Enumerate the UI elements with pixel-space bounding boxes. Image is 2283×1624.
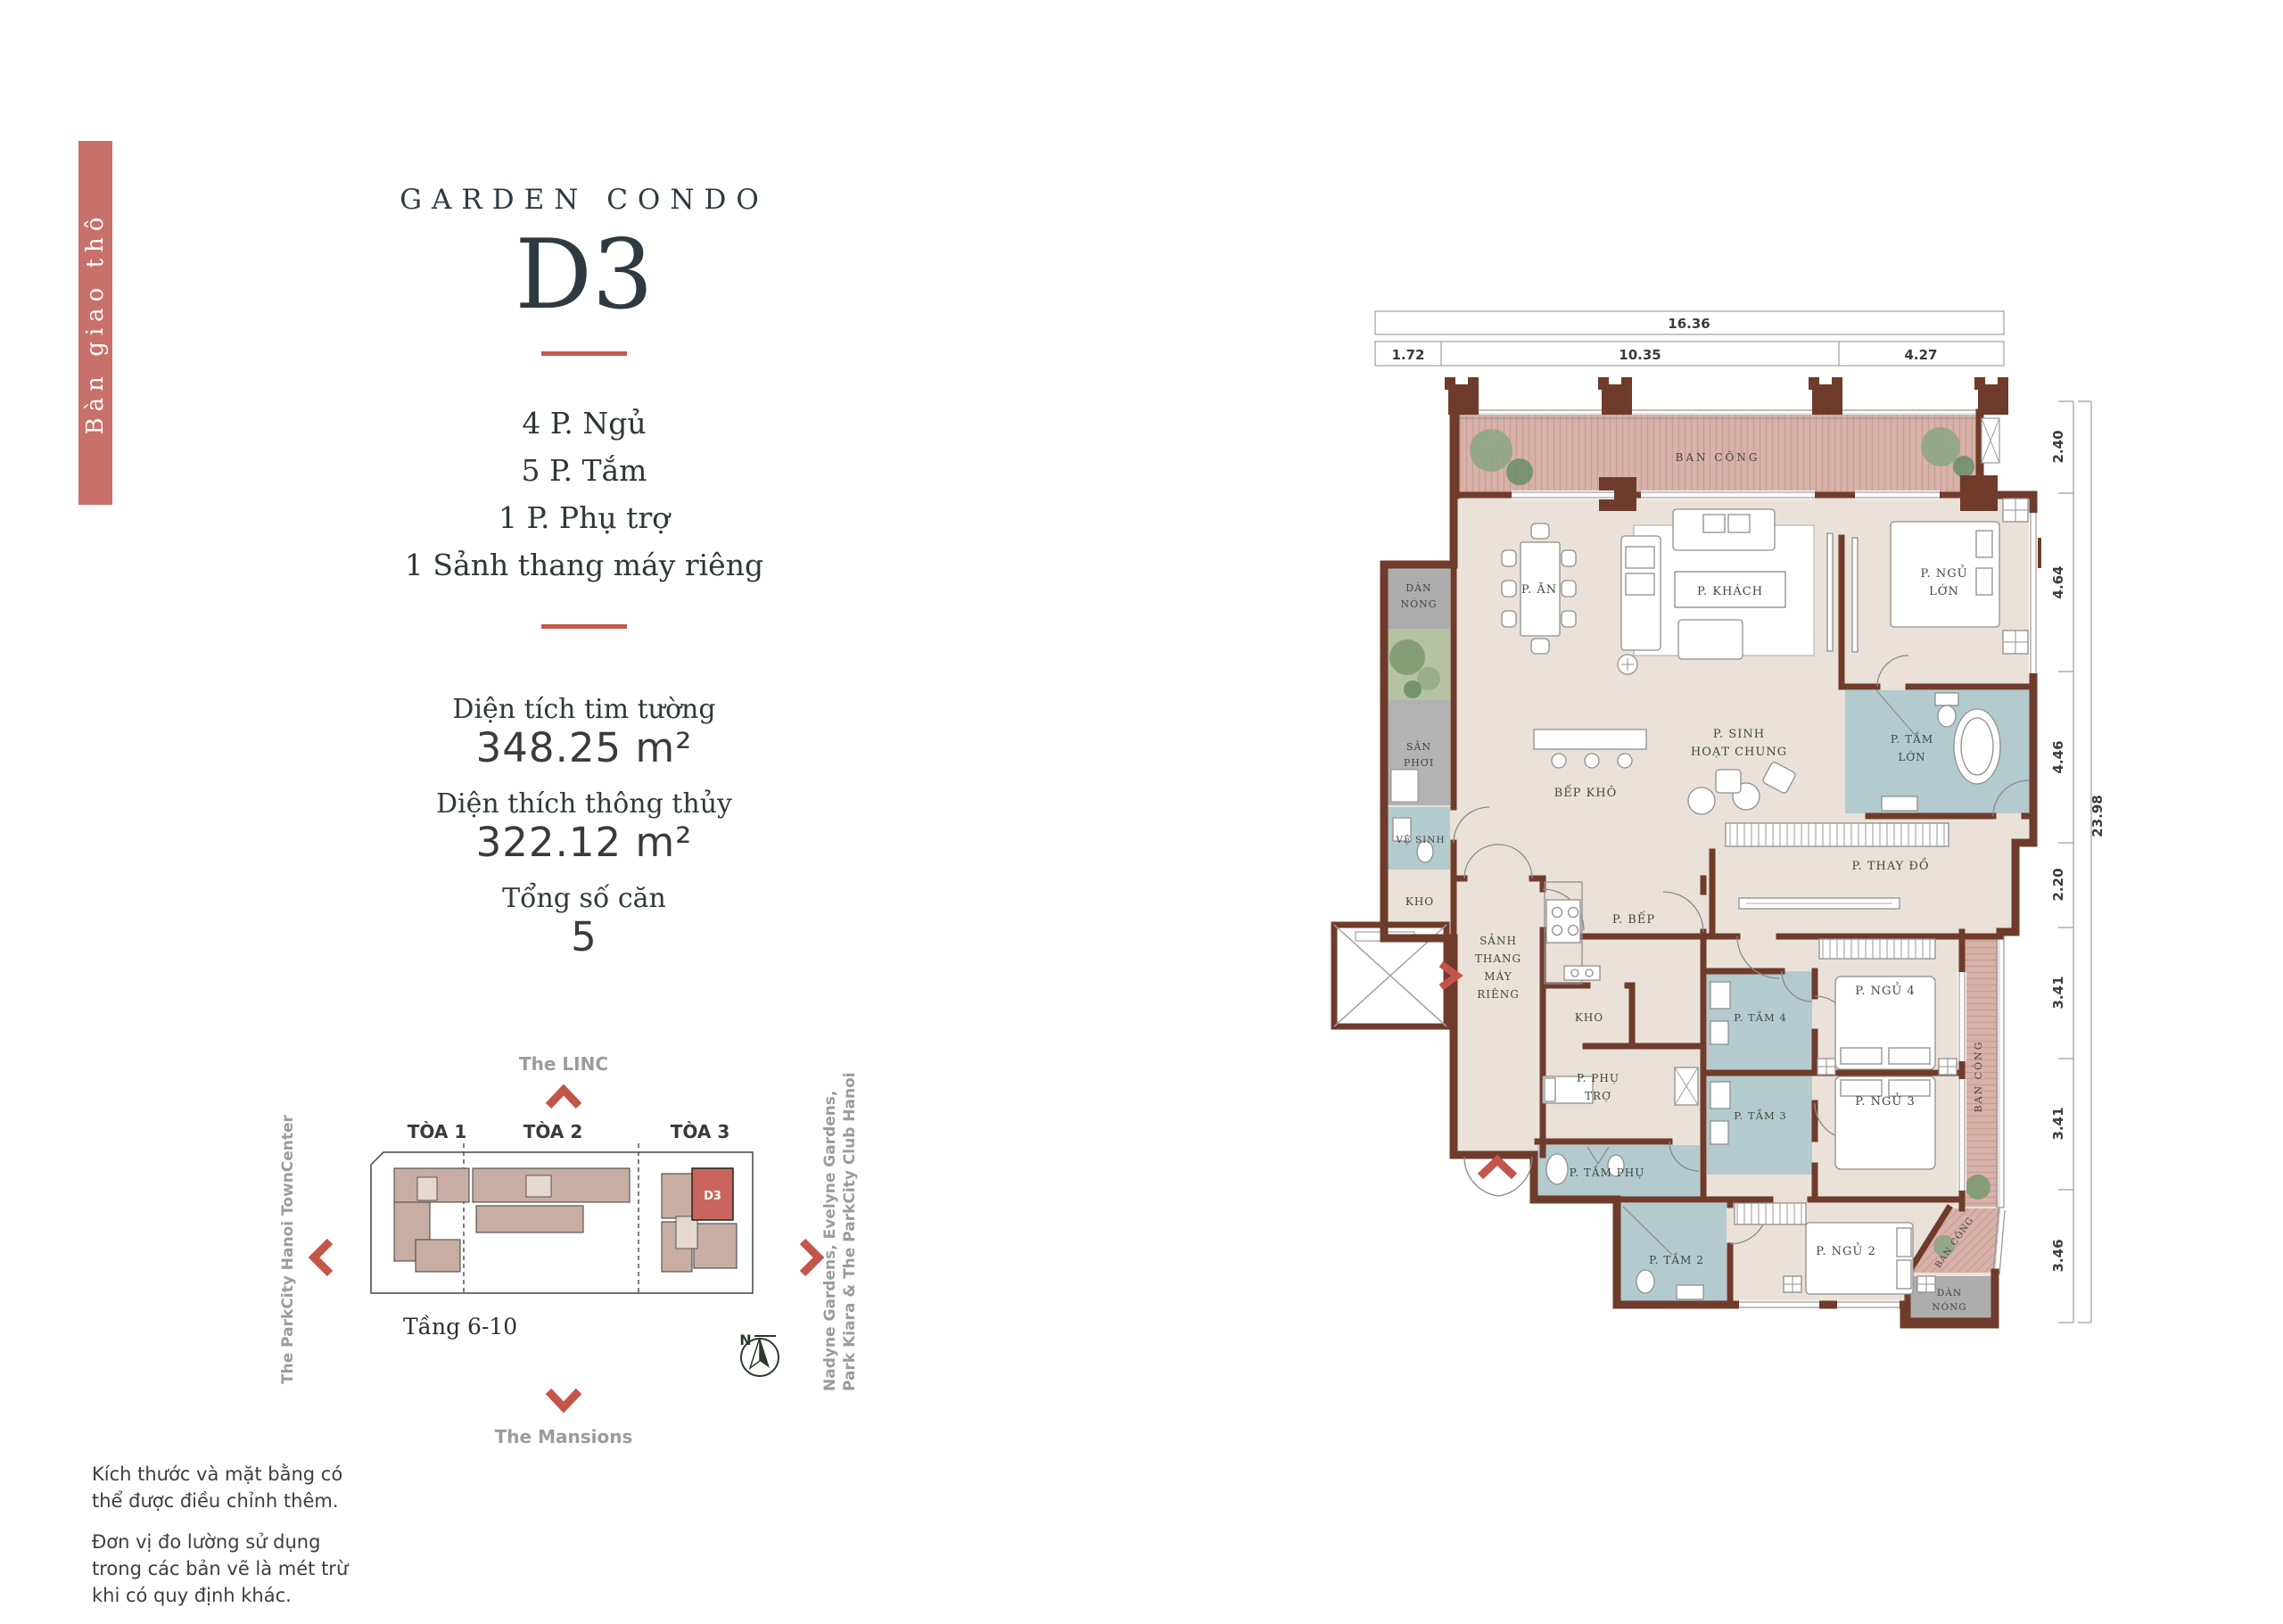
map-south-label: The Mansions	[495, 1426, 633, 1447]
label-lift-lobby-1: SẢNH	[1479, 932, 1517, 947]
dim-right-5: 3.41	[2050, 976, 2066, 1009]
dim-top-3: 4.27	[1904, 347, 1937, 363]
dim-right-1: 2.40	[2050, 430, 2066, 463]
tower-3-label: TÒA 3	[671, 1121, 729, 1142]
handover-tag-bar: Bàn giao thô	[78, 141, 112, 505]
label-master-bath-2: LỚN	[1898, 749, 1925, 763]
floor-plan: BAN CÔNG P. ĂN P. KHÁCH P. NGỦ LỚN DÀN N…	[1320, 308, 2105, 1356]
dim-right-6: 3.41	[2050, 1107, 2066, 1140]
label-dressing: P. THAY ĐỒ	[1851, 857, 1929, 873]
floors-label: Tầng 6-10	[403, 1314, 517, 1340]
label-master-bath-1: P. TẮM	[1891, 730, 1933, 746]
gross-area-value: 348.25 m²	[334, 726, 834, 771]
dim-right-7: 3.46	[2050, 1239, 2066, 1272]
map-east-label-1: Nadyne Gardens, Evelyne Gardens,	[821, 1091, 839, 1391]
tower-2-label: TÒA 2	[523, 1121, 582, 1142]
label-bath2: P. TẮM 2	[1649, 1251, 1704, 1266]
total-units-value: 5	[334, 915, 834, 960]
label-lift-lobby-2: THANG	[1475, 952, 1521, 965]
label-master-bed-1: P. NGỦ	[1920, 565, 1967, 581]
map-north-label: The LINC	[519, 1053, 608, 1075]
label-living: P. KHÁCH	[1697, 584, 1763, 598]
disclaimer-1: Kích thước và mặt bằng có thể được điều …	[92, 1461, 375, 1514]
map-west-label: The ParkCity Hanoi TownCenter	[279, 1114, 297, 1384]
gross-area-label: Diện tích tim tường	[334, 694, 834, 726]
map-east-label-2: Park Kiara & The ParkCity Club Hanoi	[841, 1072, 859, 1391]
divider-bottom	[541, 624, 627, 629]
dim-right-4: 2.20	[2050, 868, 2066, 901]
label-kitchen: P. BẾP	[1612, 911, 1655, 927]
label-ac-unit2-1: DÀN	[1937, 1286, 1962, 1298]
south-chevron-icon	[548, 1391, 579, 1407]
label-wc: VỆ SINH	[1395, 833, 1445, 845]
total-units-label: Tổng số căn	[334, 883, 834, 915]
label-utility-1: P. PHỤ	[1577, 1072, 1620, 1084]
unit-specs-list: 4 P. Ngủ 5 P. Tắm 1 P. Phụ trợ 1 Sảnh th…	[334, 400, 834, 589]
label-storage2: KHO	[1575, 1011, 1603, 1024]
dim-top-total: 16.36	[1668, 316, 1710, 332]
label-bed2: P. NGỦ 2	[1816, 1242, 1876, 1258]
corner-shaft	[1982, 418, 1999, 463]
label-bed3: P. NGỦ 3	[1855, 1092, 1916, 1109]
net-area-value: 322.12 m²	[334, 820, 834, 865]
label-dining: P. ĂN	[1521, 582, 1557, 597]
label-balcony-right: BAN CÔNG	[1972, 1041, 1984, 1113]
tower-1-label: TÒA 1	[408, 1121, 466, 1142]
label-utility-2: TRỢ	[1585, 1090, 1611, 1102]
label-family-1: P. SINH	[1713, 728, 1765, 741]
label-bath3: P. TẮM 3	[1734, 1109, 1786, 1122]
label-dry-kitchen: BẾP KHÔ	[1554, 784, 1618, 800]
label-balcony-top: BAN CÔNG	[1676, 449, 1760, 464]
spec-bathrooms: 5 P. Tắm	[334, 447, 834, 494]
label-laundry-1: SÂN	[1406, 740, 1431, 753]
unit-title: D3	[334, 219, 834, 331]
dim-top-1: 1.72	[1391, 347, 1424, 363]
label-laundry-2: PHƠI	[1404, 757, 1434, 769]
label-ac-unit-1: DÀN	[1405, 581, 1431, 594]
north-chevron-icon	[548, 1090, 579, 1106]
east-chevron-icon	[803, 1241, 819, 1274]
handover-tag-label: Bàn giao thô	[82, 211, 109, 435]
dim-right-total: 23.98	[2089, 795, 2105, 837]
area-figures: Diện tích tim tường 348.25 m² Diện thích…	[334, 694, 834, 977]
compass-icon: N	[739, 1331, 779, 1376]
spec-bedrooms: 4 P. Ngủ	[334, 400, 834, 447]
dim-top-2: 10.35	[1619, 347, 1661, 363]
divider-top	[541, 351, 627, 356]
highlighted-unit-label: D3	[704, 1190, 721, 1203]
dim-right-3: 4.46	[2050, 740, 2066, 773]
label-ac-unit2-2: NÓNG	[1932, 1300, 1966, 1313]
label-lift-lobby-3: MÁY	[1484, 969, 1512, 983]
label-storage: KHO	[1405, 895, 1434, 908]
dim-right-2: 4.64	[2050, 565, 2066, 598]
label-ac-unit-2: NÓNG	[1400, 598, 1437, 610]
label-aux-bath: P. TẮM PHỤ	[1570, 1164, 1645, 1179]
site-location-map: The LINC The Mansions The ParkCity Hanoi…	[259, 1035, 883, 1489]
label-bed4: P. NGỦ 4	[1855, 982, 1916, 998]
label-bath4: P. TẮM 4	[1734, 1010, 1786, 1024]
spec-utility: 1 P. Phụ trợ	[334, 494, 834, 541]
label-master-bed-2: LỚN	[1929, 583, 1959, 598]
disclaimer-block: Kích thước và mặt bằng có thể được điều …	[92, 1461, 375, 1623]
compass-n-label: N	[739, 1331, 751, 1348]
label-lift-lobby-4: RIÊNG	[1477, 987, 1520, 1001]
west-chevron-icon	[314, 1241, 330, 1274]
label-family-2: HOẠT CHUNG	[1691, 746, 1787, 759]
disclaimer-2: Đơn vị đo lường sử dụng trong các bản vẽ…	[92, 1529, 375, 1609]
net-area-label: Diện thích thông thủy	[334, 788, 834, 820]
collection-title: GARDEN CONDO	[334, 184, 834, 216]
spec-lift-lobby: 1 Sảnh thang máy riêng	[334, 541, 834, 589]
